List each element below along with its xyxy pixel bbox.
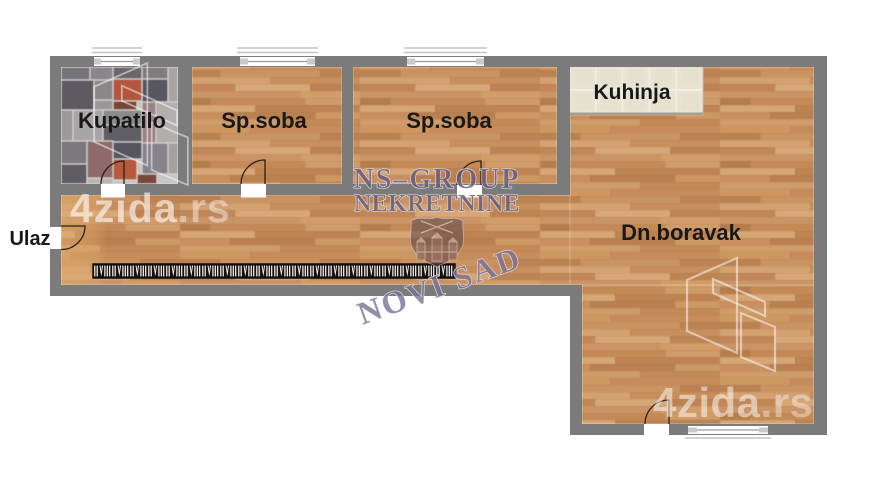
- svg-text:Sp.soba: Sp.soba: [221, 108, 307, 133]
- svg-text:4zida.rs: 4zida.rs: [653, 379, 813, 426]
- svg-text:Ulaz: Ulaz: [9, 228, 50, 250]
- svg-text:Kupatilo: Kupatilo: [78, 108, 166, 133]
- svg-text:Dn.boravak: Dn.boravak: [621, 220, 742, 245]
- svg-text:Kuhinja: Kuhinja: [594, 81, 671, 104]
- svg-text:Sp.soba: Sp.soba: [406, 108, 492, 133]
- svg-text:4zida.rs: 4zida.rs: [70, 185, 231, 231]
- svg-text:NEKRETNINE: NEKRETNINE: [354, 191, 520, 217]
